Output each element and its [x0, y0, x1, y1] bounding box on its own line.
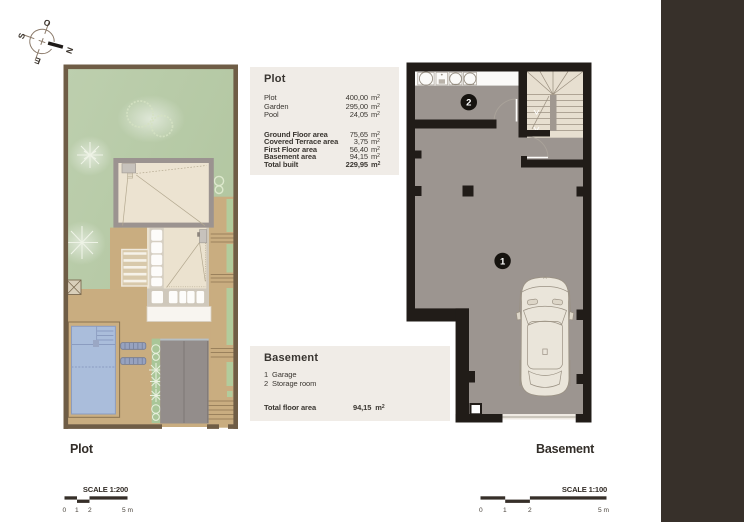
svg-text:SCALE 1:200: SCALE 1:200 — [83, 485, 128, 494]
svg-text:2: 2 — [528, 507, 532, 514]
svg-text:E: E — [33, 55, 42, 66]
svg-text:5 m: 5 m — [122, 507, 133, 514]
svg-text:1: 1 — [503, 507, 507, 514]
svg-text:5 m: 5 m — [598, 507, 609, 514]
svg-text:S: S — [16, 31, 27, 40]
svg-text:0: 0 — [479, 507, 483, 514]
svg-text:1: 1 — [75, 507, 79, 514]
svg-text:N: N — [64, 46, 75, 55]
svg-text:2: 2 — [466, 98, 471, 109]
svg-text:0: 0 — [63, 507, 67, 514]
svg-text:O: O — [42, 17, 52, 29]
svg-text:2: 2 — [88, 507, 92, 514]
svg-text:SCALE 1:100: SCALE 1:100 — [562, 485, 607, 494]
svg-text:1: 1 — [500, 256, 506, 267]
